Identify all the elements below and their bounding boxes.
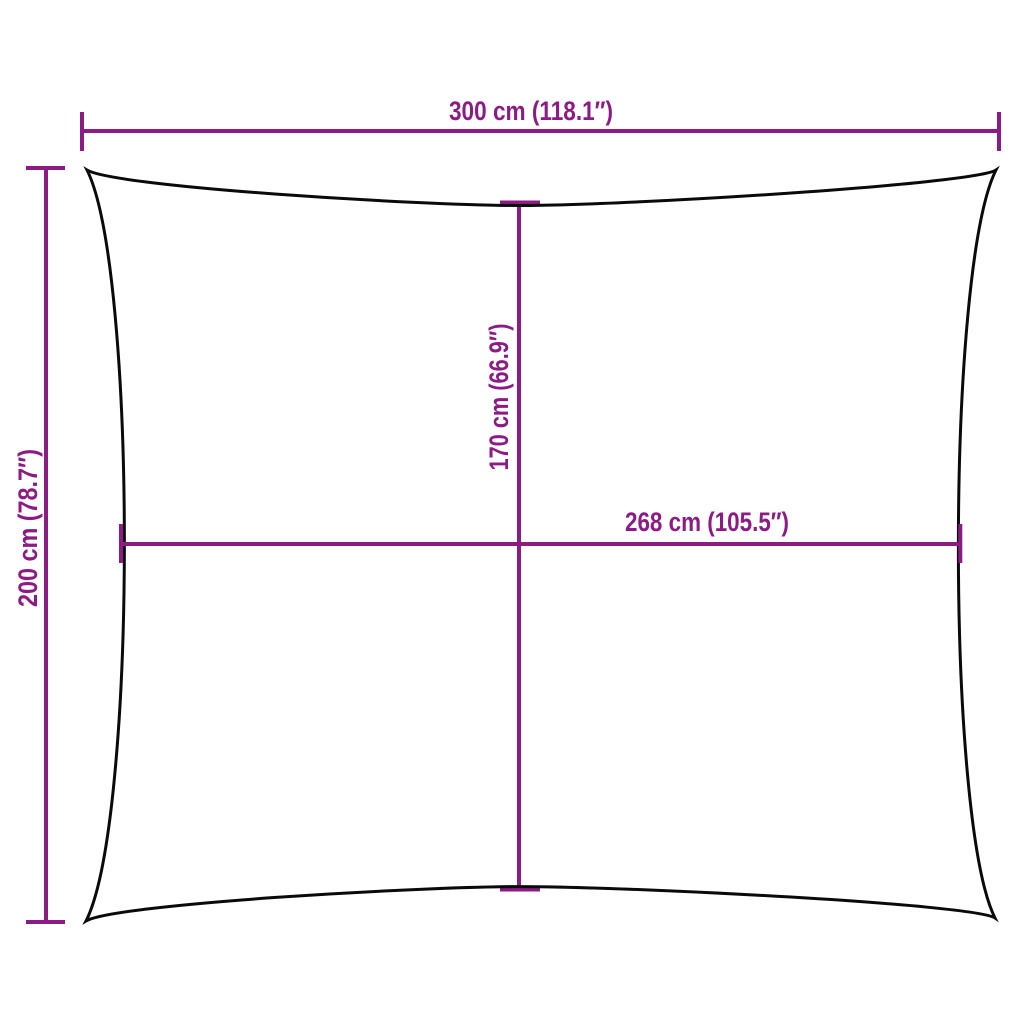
svg-text:200 cm (78.7″): 200 cm (78.7″) <box>13 449 43 607</box>
svg-text:300 cm (118.1″): 300 cm (118.1″) <box>449 96 613 126</box>
svg-text:268 cm (105.5″): 268 cm (105.5″) <box>625 507 789 537</box>
svg-text:170 cm (66.9″): 170 cm (66.9″) <box>484 324 514 471</box>
